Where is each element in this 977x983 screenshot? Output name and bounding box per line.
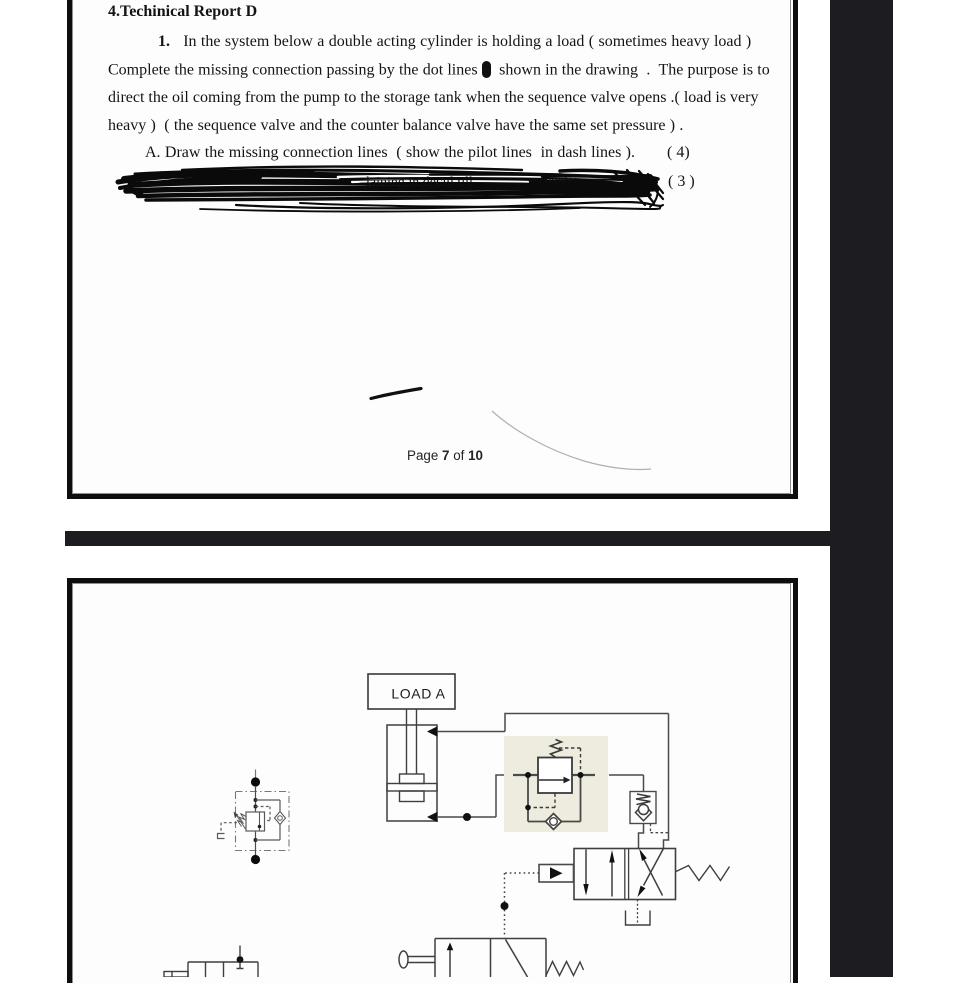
svg-text:LOAD A: LOAD A <box>391 686 445 702</box>
